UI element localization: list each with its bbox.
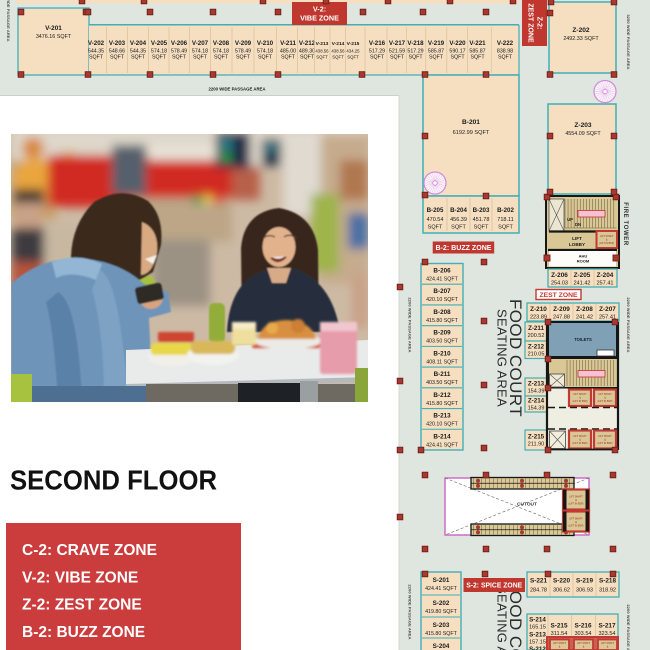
svg-text:V-2: VIBE ZONE: V-2: VIBE ZONE bbox=[22, 569, 138, 586]
svg-text:B-207: B-207 bbox=[433, 288, 451, 295]
svg-text:V-210: V-210 bbox=[257, 40, 274, 47]
svg-text:B-201: B-201 bbox=[462, 119, 480, 126]
svg-text:SQFT: SQFT bbox=[347, 55, 359, 60]
svg-text:SQFT: SQFT bbox=[214, 55, 229, 61]
svg-text:B-213: B-213 bbox=[433, 413, 451, 420]
svg-text:6192.99 SQFT: 6192.99 SQFT bbox=[453, 130, 490, 136]
svg-text:B-204: B-204 bbox=[450, 207, 467, 214]
svg-text:DN: DN bbox=[575, 222, 581, 227]
svg-text:V-205: V-205 bbox=[151, 40, 168, 47]
svg-text:415.80 SQFT: 415.80 SQFT bbox=[425, 631, 458, 637]
svg-text:SQFT: SQFT bbox=[428, 225, 443, 231]
svg-text:420.10 SQFT: 420.10 SQFT bbox=[426, 297, 459, 303]
svg-text:424.41 SQFT: 424.41 SQFT bbox=[426, 442, 459, 448]
svg-text:2200 WIDE PASSAGE AREA: 2200 WIDE PASSAGE AREA bbox=[407, 584, 412, 639]
svg-text:Z-202: Z-202 bbox=[572, 27, 590, 34]
svg-text:V-211: V-211 bbox=[280, 40, 296, 47]
svg-text:V-203: V-203 bbox=[109, 40, 126, 47]
svg-text:B-211: B-211 bbox=[434, 371, 451, 378]
svg-text:SQFT: SQFT bbox=[470, 55, 485, 61]
svg-text:2200 WIDE PASSAGE AREA: 2200 WIDE PASSAGE AREA bbox=[626, 297, 631, 352]
svg-text:241.42: 241.42 bbox=[573, 281, 590, 287]
svg-text:V-216: V-216 bbox=[369, 40, 386, 47]
svg-text:318.92: 318.92 bbox=[599, 588, 616, 594]
svg-text:Z-206: Z-206 bbox=[551, 272, 568, 279]
svg-text:(LIFT IN BSP): (LIFT IN BSP) bbox=[573, 442, 588, 445]
svg-text:SQFT: SQFT bbox=[236, 55, 251, 61]
svg-text:ZEST ZONE: ZEST ZONE bbox=[527, 3, 534, 43]
svg-text:Z-214: Z-214 bbox=[528, 398, 545, 405]
svg-text:SQFT: SQFT bbox=[193, 55, 208, 61]
svg-text:V-219: V-219 bbox=[428, 40, 445, 47]
svg-text:Z-209: Z-209 bbox=[553, 306, 570, 313]
svg-text:SQFT: SQFT bbox=[474, 225, 489, 231]
svg-text:V-218: V-218 bbox=[407, 40, 424, 47]
svg-text:LIFT: LIFT bbox=[572, 236, 582, 241]
svg-text:S-213: S-213 bbox=[529, 632, 546, 639]
svg-text:2200 WIDE PASSAGE AREA: 2200 WIDE PASSAGE AREA bbox=[407, 297, 412, 352]
svg-text:415.80 SQFT: 415.80 SQFT bbox=[426, 401, 459, 407]
svg-text:(LIFT IN BSP): (LIFT IN BSP) bbox=[598, 442, 613, 445]
svg-text:V-209: V-209 bbox=[235, 40, 252, 47]
svg-text:SECOND FLOOR: SECOND FLOOR bbox=[10, 465, 217, 496]
svg-text:165.15: 165.15 bbox=[529, 625, 546, 631]
svg-text:306.62: 306.62 bbox=[553, 588, 570, 594]
svg-text:211.90: 211.90 bbox=[528, 442, 544, 448]
svg-text:223.89: 223.89 bbox=[530, 315, 547, 321]
svg-text:408.11 SQFT: 408.11 SQFT bbox=[426, 359, 458, 365]
svg-text:SQFT: SQFT bbox=[429, 55, 444, 61]
svg-text:SQFT: SQFT bbox=[450, 55, 465, 61]
svg-text:438.56: 438.56 bbox=[315, 49, 329, 54]
svg-text:S-201: S-201 bbox=[433, 577, 450, 584]
svg-text:254.03: 254.03 bbox=[551, 281, 568, 287]
svg-text:SQFT: SQFT bbox=[390, 55, 405, 61]
svg-text:LOBBY: LOBBY bbox=[569, 242, 585, 247]
svg-text:V-212: V-212 bbox=[299, 40, 316, 47]
svg-text:Z-204: Z-204 bbox=[597, 272, 614, 279]
svg-text:FIRE TOWER: FIRE TOWER bbox=[622, 202, 628, 246]
svg-text:Z-2: ZEST ZONE: Z-2: ZEST ZONE bbox=[22, 597, 142, 614]
svg-text:SQFT: SQFT bbox=[172, 55, 187, 61]
svg-text:V-221: V-221 bbox=[469, 40, 486, 47]
svg-text:S-203: S-203 bbox=[433, 622, 450, 629]
svg-text:V-202: V-202 bbox=[88, 40, 105, 47]
svg-text:S-216: S-216 bbox=[574, 623, 591, 630]
svg-text:SQFT: SQFT bbox=[332, 55, 344, 60]
svg-text:V-206: V-206 bbox=[171, 40, 188, 47]
svg-text:V-204: V-204 bbox=[130, 40, 147, 47]
svg-text:SQFT: SQFT bbox=[131, 55, 146, 61]
svg-text:S-217: S-217 bbox=[598, 623, 615, 630]
svg-text:V-201: V-201 bbox=[45, 25, 62, 32]
svg-text:SQFT: SQFT bbox=[281, 55, 296, 61]
svg-text:B-205: B-205 bbox=[427, 207, 444, 214]
svg-text:V-214: V-214 bbox=[332, 41, 345, 47]
svg-text:S-202: S-202 bbox=[433, 600, 450, 607]
svg-text:B-210: B-210 bbox=[433, 350, 451, 357]
svg-text:C-2: CRAVE ZONE: C-2: CRAVE ZONE bbox=[22, 542, 157, 559]
svg-text:B-2: BUZZ ZONE: B-2: BUZZ ZONE bbox=[22, 624, 145, 641]
svg-text:B-2: BUZZ ZONE: B-2: BUZZ ZONE bbox=[436, 243, 492, 252]
svg-text:V-220: V-220 bbox=[449, 40, 466, 47]
svg-text:CUTOUT: CUTOUT bbox=[517, 502, 537, 508]
svg-text:B-214: B-214 bbox=[433, 433, 451, 440]
svg-text:SQFT: SQFT bbox=[408, 55, 423, 61]
svg-text:Z-212: Z-212 bbox=[528, 343, 545, 350]
svg-text:S-214: S-214 bbox=[529, 617, 546, 624]
svg-text:200.52: 200.52 bbox=[528, 333, 545, 339]
svg-text:S-220: S-220 bbox=[553, 578, 570, 585]
svg-text:S-215: S-215 bbox=[550, 623, 567, 630]
svg-text:Z-205: Z-205 bbox=[574, 272, 591, 279]
svg-text:456.39: 456.39 bbox=[450, 217, 467, 223]
svg-text:VIBE ZONE: VIBE ZONE bbox=[300, 14, 339, 23]
svg-text:Z-208: Z-208 bbox=[576, 306, 593, 313]
svg-text:V-215: V-215 bbox=[347, 41, 360, 47]
svg-text:Z-211: Z-211 bbox=[528, 325, 544, 332]
svg-text:V-207: V-207 bbox=[192, 40, 209, 47]
svg-text:154.39: 154.39 bbox=[528, 389, 545, 395]
svg-text:(LIFT IN BSP): (LIFT IN BSP) bbox=[573, 400, 588, 403]
svg-text:403.50 SQFT: 403.50 SQFT bbox=[426, 380, 459, 386]
svg-text:Z-210: Z-210 bbox=[530, 306, 547, 313]
svg-text:2200 WIDE PASSAGE AREA: 2200 WIDE PASSAGE AREA bbox=[208, 87, 265, 92]
svg-text:SEATING AREA: SEATING AREA bbox=[495, 309, 510, 407]
svg-text:UP: UP bbox=[567, 217, 573, 222]
svg-text:S-212: S-212 bbox=[529, 646, 546, 650]
svg-text:B-212: B-212 bbox=[433, 392, 451, 399]
svg-text:ROOM: ROOM bbox=[577, 259, 590, 264]
svg-text:241.42: 241.42 bbox=[576, 315, 593, 321]
svg-text:(LIFT IN BSP): (LIFT IN BSP) bbox=[599, 242, 614, 245]
svg-text:SQFT: SQFT bbox=[498, 225, 513, 231]
svg-text:415.80 SQFT: 415.80 SQFT bbox=[426, 318, 459, 324]
svg-text:Z-207: Z-207 bbox=[599, 306, 616, 313]
svg-text:V-222: V-222 bbox=[497, 40, 514, 47]
svg-text:157.15: 157.15 bbox=[529, 640, 546, 646]
svg-text:B-202: B-202 bbox=[497, 207, 514, 214]
svg-text:470.54: 470.54 bbox=[427, 217, 444, 223]
svg-text:438.56: 438.56 bbox=[331, 49, 345, 54]
svg-text:S-221: S-221 bbox=[530, 578, 547, 585]
svg-text:424.41 SQFT: 424.41 SQFT bbox=[426, 277, 459, 283]
svg-text:(LIFT IN BSP): (LIFT IN BSP) bbox=[569, 503, 584, 506]
svg-text:B-209: B-209 bbox=[433, 330, 451, 337]
svg-text:SQFT: SQFT bbox=[258, 55, 273, 61]
svg-text:V-217: V-217 bbox=[389, 40, 406, 47]
svg-text:(LIFT IN BSP): (LIFT IN BSP) bbox=[598, 400, 613, 403]
svg-text:S-204: S-204 bbox=[433, 643, 450, 650]
svg-text:S-2: SPICE ZONE: S-2: SPICE ZONE bbox=[466, 581, 522, 590]
svg-text:306.93: 306.93 bbox=[576, 588, 593, 594]
svg-text:SQFT: SQFT bbox=[316, 55, 328, 60]
svg-text:3476.16 SQFT: 3476.16 SQFT bbox=[36, 34, 72, 40]
svg-text:424.41 SQFT: 424.41 SQFT bbox=[425, 586, 458, 592]
svg-text:2492.33 SQFT: 2492.33 SQFT bbox=[563, 36, 599, 42]
svg-text:403.50 SQFT: 403.50 SQFT bbox=[426, 339, 459, 345]
svg-text:247.88: 247.88 bbox=[553, 315, 570, 321]
svg-text:451.78: 451.78 bbox=[473, 217, 490, 223]
svg-text:S-219: S-219 bbox=[576, 578, 593, 585]
svg-text:154.39: 154.39 bbox=[528, 406, 545, 412]
svg-text:210.05: 210.05 bbox=[528, 351, 545, 357]
svg-text:419.80 SQFT: 419.80 SQFT bbox=[425, 609, 458, 615]
svg-text:434.25: 434.25 bbox=[346, 49, 360, 54]
svg-text:SQFT: SQFT bbox=[152, 55, 167, 61]
svg-text:SQFT: SQFT bbox=[498, 55, 513, 61]
svg-text:257.41: 257.41 bbox=[596, 281, 613, 287]
svg-text:420.10 SQFT: 420.10 SQFT bbox=[426, 422, 459, 428]
svg-text:SQFT: SQFT bbox=[300, 55, 315, 61]
svg-text:Z-2:: Z-2: bbox=[536, 17, 543, 30]
svg-text:TOILETS: TOILETS bbox=[574, 337, 592, 342]
svg-text:3250 WIDE PASSAGE AREA: 3250 WIDE PASSAGE AREA bbox=[626, 14, 631, 69]
svg-text:4554.09 SQFT: 4554.09 SQFT bbox=[565, 131, 601, 137]
svg-text:718.11: 718.11 bbox=[497, 217, 513, 223]
svg-text:SQFT: SQFT bbox=[370, 55, 385, 61]
svg-text:Z-203: Z-203 bbox=[574, 122, 592, 129]
svg-text:B-208: B-208 bbox=[433, 309, 451, 316]
svg-text:Z-213: Z-213 bbox=[528, 381, 545, 388]
svg-text:Z-215: Z-215 bbox=[528, 434, 545, 441]
svg-text:V-208: V-208 bbox=[213, 40, 230, 47]
svg-text:2200 WIDE PASSAGE AREA: 2200 WIDE PASSAGE AREA bbox=[626, 604, 631, 650]
svg-text:SQFT: SQFT bbox=[451, 225, 466, 231]
svg-text:SEATING AREA: SEATING AREA bbox=[495, 585, 510, 650]
svg-text:284.78: 284.78 bbox=[530, 588, 547, 594]
svg-text:B-203: B-203 bbox=[473, 207, 490, 214]
svg-text:V-213: V-213 bbox=[316, 41, 329, 47]
svg-text:SQFT: SQFT bbox=[89, 55, 104, 61]
svg-text:ZEST ZONE: ZEST ZONE bbox=[540, 292, 578, 299]
svg-text:S-218: S-218 bbox=[599, 578, 616, 585]
svg-text:B-206: B-206 bbox=[433, 268, 451, 275]
svg-text:(LIFT IN BSP): (LIFT IN BSP) bbox=[569, 525, 584, 528]
svg-text:SQFT: SQFT bbox=[110, 55, 125, 61]
svg-text:2200 WIDE PASSAGE AREA: 2200 WIDE PASSAGE AREA bbox=[6, 0, 11, 42]
svg-text:V-2:: V-2: bbox=[313, 5, 326, 14]
